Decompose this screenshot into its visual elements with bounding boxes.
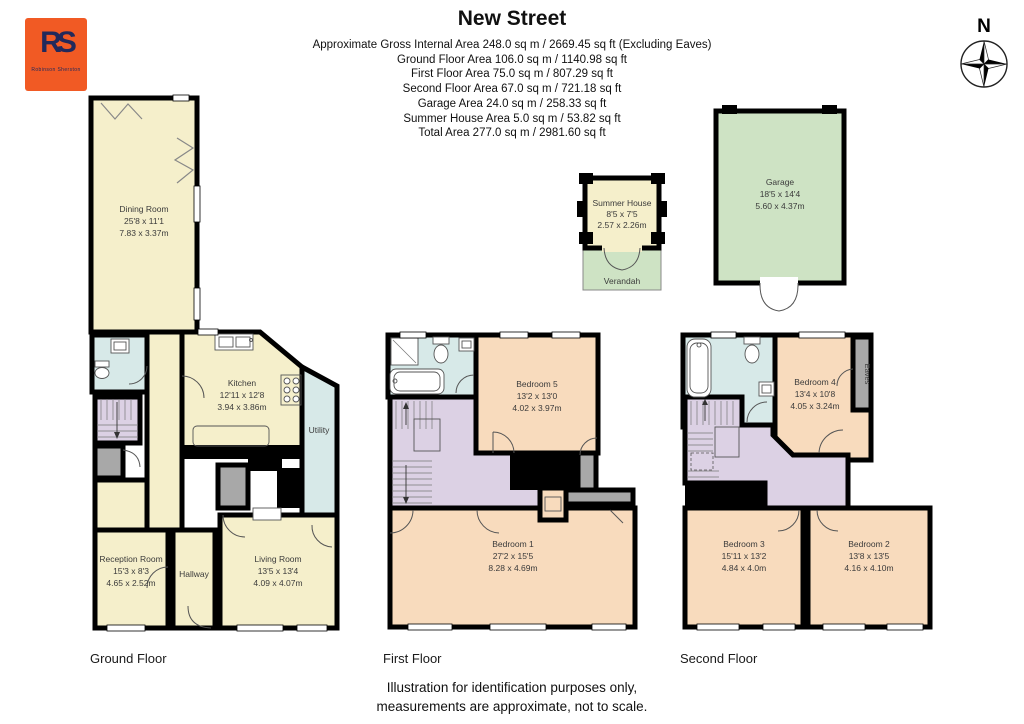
ff-eaves-strip bbox=[563, 490, 633, 504]
room-label-eaves: Eaves bbox=[863, 364, 872, 385]
room-label-bedroom3: Bedroom 3 15'11 x 13'2 4.84 x 4.0m bbox=[722, 539, 767, 573]
svg-text:13'8 x 13'5: 13'8 x 13'5 bbox=[849, 551, 890, 561]
svg-text:Bedroom 5: Bedroom 5 bbox=[516, 379, 558, 389]
door-opening bbox=[760, 277, 798, 286]
svg-text:25'8 x 11'1: 25'8 x 11'1 bbox=[124, 216, 164, 226]
room-label-bedroom5: Bedroom 5 13'2 x 13'0 4.02 x 3.97m bbox=[512, 379, 561, 413]
svg-text:Bedroom 2: Bedroom 2 bbox=[848, 539, 890, 549]
window bbox=[237, 625, 283, 631]
kitchen-sink-icon bbox=[215, 334, 253, 350]
svg-text:13'2 x 13'0: 13'2 x 13'0 bbox=[517, 391, 558, 401]
window bbox=[823, 624, 865, 630]
logo-company-name: Robinson Sherston bbox=[25, 67, 87, 73]
window bbox=[198, 329, 218, 335]
page-title: New Street bbox=[262, 6, 762, 32]
svg-text:18'5 x 14'4: 18'5 x 14'4 bbox=[760, 189, 801, 199]
room-label-dining: Dining Room 25'8 x 11'1 7.83 x 3.37m bbox=[119, 204, 168, 238]
window bbox=[697, 624, 739, 630]
toilet-icon bbox=[433, 337, 449, 363]
svg-text:4.05 x 3.24m: 4.05 x 3.24m bbox=[790, 401, 839, 411]
room-label-bedroom1: Bedroom 1 27'2 x 15'5 8.28 x 4.69m bbox=[488, 539, 537, 573]
caption-first-floor: First Floor bbox=[383, 651, 442, 666]
window bbox=[887, 624, 923, 630]
svg-text:4.02 x 3.97m: 4.02 x 3.97m bbox=[512, 403, 561, 413]
svg-text:Dining Room: Dining Room bbox=[119, 204, 168, 214]
ground-floor-plan: Dining Room 25'8 x 11'1 7.83 x 3.37m Kit… bbox=[85, 90, 380, 640]
window bbox=[107, 625, 145, 631]
window bbox=[297, 625, 327, 631]
bathtub-icon bbox=[390, 369, 444, 394]
window bbox=[490, 624, 546, 630]
window bbox=[763, 624, 795, 630]
room-label-verandah: Verandah bbox=[604, 276, 641, 286]
caption-second-floor: Second Floor bbox=[680, 651, 757, 666]
disclaimer-line: Illustration for identification purposes… bbox=[212, 678, 812, 697]
window bbox=[408, 624, 452, 630]
door-opening bbox=[602, 244, 642, 252]
svg-text:Garage: Garage bbox=[766, 177, 795, 187]
room-label-utility: Utility bbox=[309, 425, 331, 435]
svg-text:12'11 x 12'8: 12'11 x 12'8 bbox=[220, 390, 265, 400]
gf-chimney-block bbox=[218, 465, 248, 508]
fireplace-hearth bbox=[253, 508, 281, 520]
window bbox=[592, 624, 626, 630]
svg-text:8'5 x 7'5: 8'5 x 7'5 bbox=[606, 209, 637, 219]
disclaimer: Illustration for identification purposes… bbox=[212, 678, 812, 716]
ff-chimney-block bbox=[578, 453, 596, 490]
wall-block bbox=[277, 468, 302, 508]
svg-text:5.60 x 4.37m: 5.60 x 4.37m bbox=[755, 201, 804, 211]
room-label-hallway: Hallway bbox=[179, 569, 210, 579]
sink-icon bbox=[111, 339, 129, 353]
shower-icon bbox=[391, 338, 418, 365]
caption-ground-floor: Ground Floor bbox=[90, 651, 167, 666]
room-utility bbox=[302, 367, 337, 520]
svg-text:Bedroom 3: Bedroom 3 bbox=[723, 539, 765, 549]
room-hall-connector bbox=[95, 480, 147, 530]
wall-block bbox=[182, 445, 302, 459]
svg-text:15'11 x 13'2: 15'11 x 13'2 bbox=[722, 551, 767, 561]
svg-text:4.16 x 4.10m: 4.16 x 4.10m bbox=[844, 563, 893, 573]
room-hall-corridor bbox=[147, 332, 182, 530]
logo-initials: RS bbox=[25, 28, 87, 58]
svg-text:Bedroom 1: Bedroom 1 bbox=[492, 539, 534, 549]
garage-door-arc bbox=[760, 283, 779, 311]
room-label-living: Living Room 13'5 x 13'4 4.09 x 4.07m bbox=[253, 554, 302, 588]
svg-text:4.84 x 4.0m: 4.84 x 4.0m bbox=[722, 563, 766, 573]
svg-text:4.09 x 4.07m: 4.09 x 4.07m bbox=[253, 578, 302, 588]
svg-text:4.65 x 2.52m: 4.65 x 2.52m bbox=[106, 578, 155, 588]
window bbox=[400, 332, 426, 338]
ff-chimney-bump bbox=[540, 488, 566, 520]
window bbox=[194, 186, 200, 222]
room-label-bedroom4: Bedroom 4 13'4 x 10'8 4.05 x 3.24m bbox=[790, 377, 839, 411]
wall-block bbox=[510, 453, 580, 490]
svg-text:15'3 x 8'3: 15'3 x 8'3 bbox=[113, 566, 149, 576]
window bbox=[173, 95, 189, 101]
door-arc bbox=[123, 450, 140, 467]
area-line: Ground Floor Area 106.0 sq m / 1140.98 s… bbox=[262, 53, 762, 68]
window bbox=[500, 332, 528, 338]
wall-corner-tab bbox=[822, 105, 837, 114]
garage-plan: Garage 18'5 x 14'4 5.60 x 4.37m bbox=[708, 105, 853, 315]
toilet-icon bbox=[95, 361, 109, 379]
window bbox=[552, 332, 580, 338]
svg-text:7.83 x 3.37m: 7.83 x 3.37m bbox=[119, 228, 168, 238]
sink-icon bbox=[759, 382, 774, 396]
svg-text:Reception Room: Reception Room bbox=[99, 554, 162, 564]
svg-text:13'5 x 13'4: 13'5 x 13'4 bbox=[258, 566, 299, 576]
svg-text:27'2 x 15'5: 27'2 x 15'5 bbox=[493, 551, 534, 561]
compass-rose: N bbox=[952, 12, 1016, 96]
wall-block bbox=[248, 457, 282, 471]
compass-north-label: N bbox=[977, 16, 991, 37]
room-hallway bbox=[173, 530, 215, 628]
area-line: First Floor Area 75.0 sq m / 807.29 sq f… bbox=[262, 67, 762, 82]
svg-text:Living Room: Living Room bbox=[254, 554, 301, 564]
bathtub-icon bbox=[687, 339, 711, 397]
svg-text:Summer House: Summer House bbox=[592, 198, 651, 208]
second-floor-plan: Bedroom 4 13'4 x 10'8 4.05 x 3.24m Eaves… bbox=[675, 325, 965, 640]
svg-text:Kitchen: Kitchen bbox=[228, 378, 257, 388]
sink-icon bbox=[459, 338, 474, 351]
wall-block bbox=[685, 481, 765, 508]
svg-text:8.28 x 4.69m: 8.28 x 4.69m bbox=[488, 563, 537, 573]
wall-corner-tab bbox=[722, 105, 737, 114]
garage-door-arc bbox=[779, 283, 798, 311]
floorplan-page: { "logo": { "initials": "RS", "company":… bbox=[0, 0, 1024, 724]
first-floor-plan: Bedroom 5 13'2 x 13'0 4.02 x 3.97m Bedro… bbox=[380, 325, 670, 640]
disclaimer-line: measurements are approximate, not to sca… bbox=[212, 697, 812, 716]
logo-robinson-sherston: RS Robinson Sherston bbox=[25, 18, 87, 91]
room-dining bbox=[91, 98, 197, 332]
summer-house-plan: Summer House 8'5 x 7'5 2.57 x 2.26m Vera… bbox=[572, 168, 672, 298]
area-line: Approximate Gross Internal Area 248.0 sq… bbox=[262, 38, 762, 53]
window bbox=[799, 332, 845, 338]
window bbox=[194, 288, 200, 320]
window bbox=[711, 332, 736, 338]
svg-text:Bedroom 4: Bedroom 4 bbox=[794, 377, 836, 387]
toilet-icon bbox=[744, 337, 760, 363]
gf-chimney-block bbox=[95, 446, 123, 478]
room-label-bedroom2: Bedroom 2 13'8 x 13'5 4.16 x 4.10m bbox=[844, 539, 893, 573]
svg-text:13'4 x 10'8: 13'4 x 10'8 bbox=[795, 389, 836, 399]
svg-text:3.94 x 3.86m: 3.94 x 3.86m bbox=[217, 402, 266, 412]
svg-text:2.57 x 2.26m: 2.57 x 2.26m bbox=[597, 220, 646, 230]
